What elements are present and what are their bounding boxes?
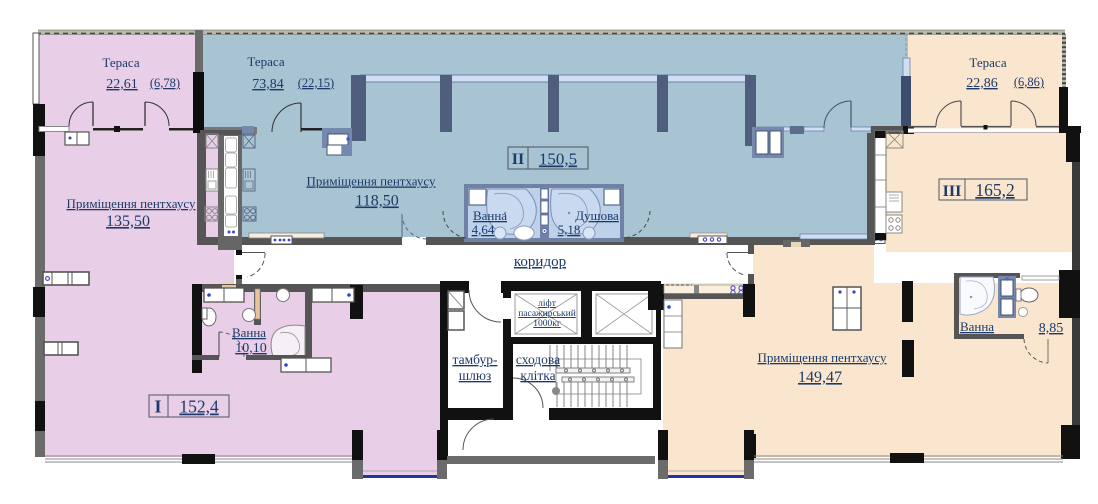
svg-text:(6,86): (6,86) bbox=[1014, 75, 1044, 89]
svg-text:Душова: Душова bbox=[575, 208, 619, 223]
svg-text:22,61: 22,61 bbox=[106, 77, 138, 92]
svg-text:Тераса: Тераса bbox=[247, 54, 284, 69]
svg-text:сходова: сходова bbox=[516, 352, 560, 367]
svg-text:22,86: 22,86 bbox=[966, 76, 998, 91]
svg-text:III: III bbox=[943, 183, 962, 200]
svg-text:150,5: 150,5 bbox=[539, 150, 577, 169]
svg-text:Ванна: Ванна bbox=[232, 325, 266, 340]
svg-text:149,47: 149,47 bbox=[798, 369, 842, 386]
svg-text:II: II bbox=[512, 151, 524, 168]
svg-text:(6,78): (6,78) bbox=[150, 76, 180, 90]
svg-text:5,18: 5,18 bbox=[558, 222, 581, 237]
svg-text:коридор: коридор bbox=[514, 254, 566, 270]
svg-text:10,10: 10,10 bbox=[235, 341, 267, 356]
svg-text:152,4: 152,4 bbox=[179, 397, 219, 417]
svg-text:Ванна: Ванна bbox=[473, 208, 507, 223]
svg-text:Тераса: Тераса bbox=[102, 55, 139, 70]
svg-text:клітка: клітка bbox=[520, 368, 555, 383]
svg-text:ліфт: ліфт bbox=[538, 298, 557, 309]
svg-text:пасажирський: пасажирський bbox=[518, 308, 576, 319]
svg-text:8,85: 8,85 bbox=[1039, 321, 1064, 336]
svg-text:118,50: 118,50 bbox=[355, 193, 398, 210]
svg-text:тамбур-: тамбур- bbox=[453, 352, 498, 367]
svg-text:73,84: 73,84 bbox=[252, 77, 284, 92]
svg-text:1000кг: 1000кг bbox=[533, 319, 561, 329]
svg-text:165,2: 165,2 bbox=[975, 180, 1014, 200]
svg-text:I: I bbox=[154, 397, 161, 417]
svg-text:шлюз: шлюз bbox=[459, 368, 492, 383]
svg-text:4,64: 4,64 bbox=[472, 222, 495, 237]
svg-text:(22,15): (22,15) bbox=[298, 76, 334, 90]
svg-text:Приміщення пентхаусу: Приміщення пентхаусу bbox=[66, 196, 196, 211]
svg-text:Ванна: Ванна bbox=[960, 319, 994, 334]
svg-text:135,50: 135,50 bbox=[106, 213, 150, 230]
svg-text:Приміщення пентхаусу: Приміщення пентхаусу bbox=[306, 174, 436, 189]
svg-text:Приміщення пентхаусу: Приміщення пентхаусу bbox=[757, 350, 887, 365]
svg-text:Тераса: Тераса bbox=[969, 55, 1006, 70]
